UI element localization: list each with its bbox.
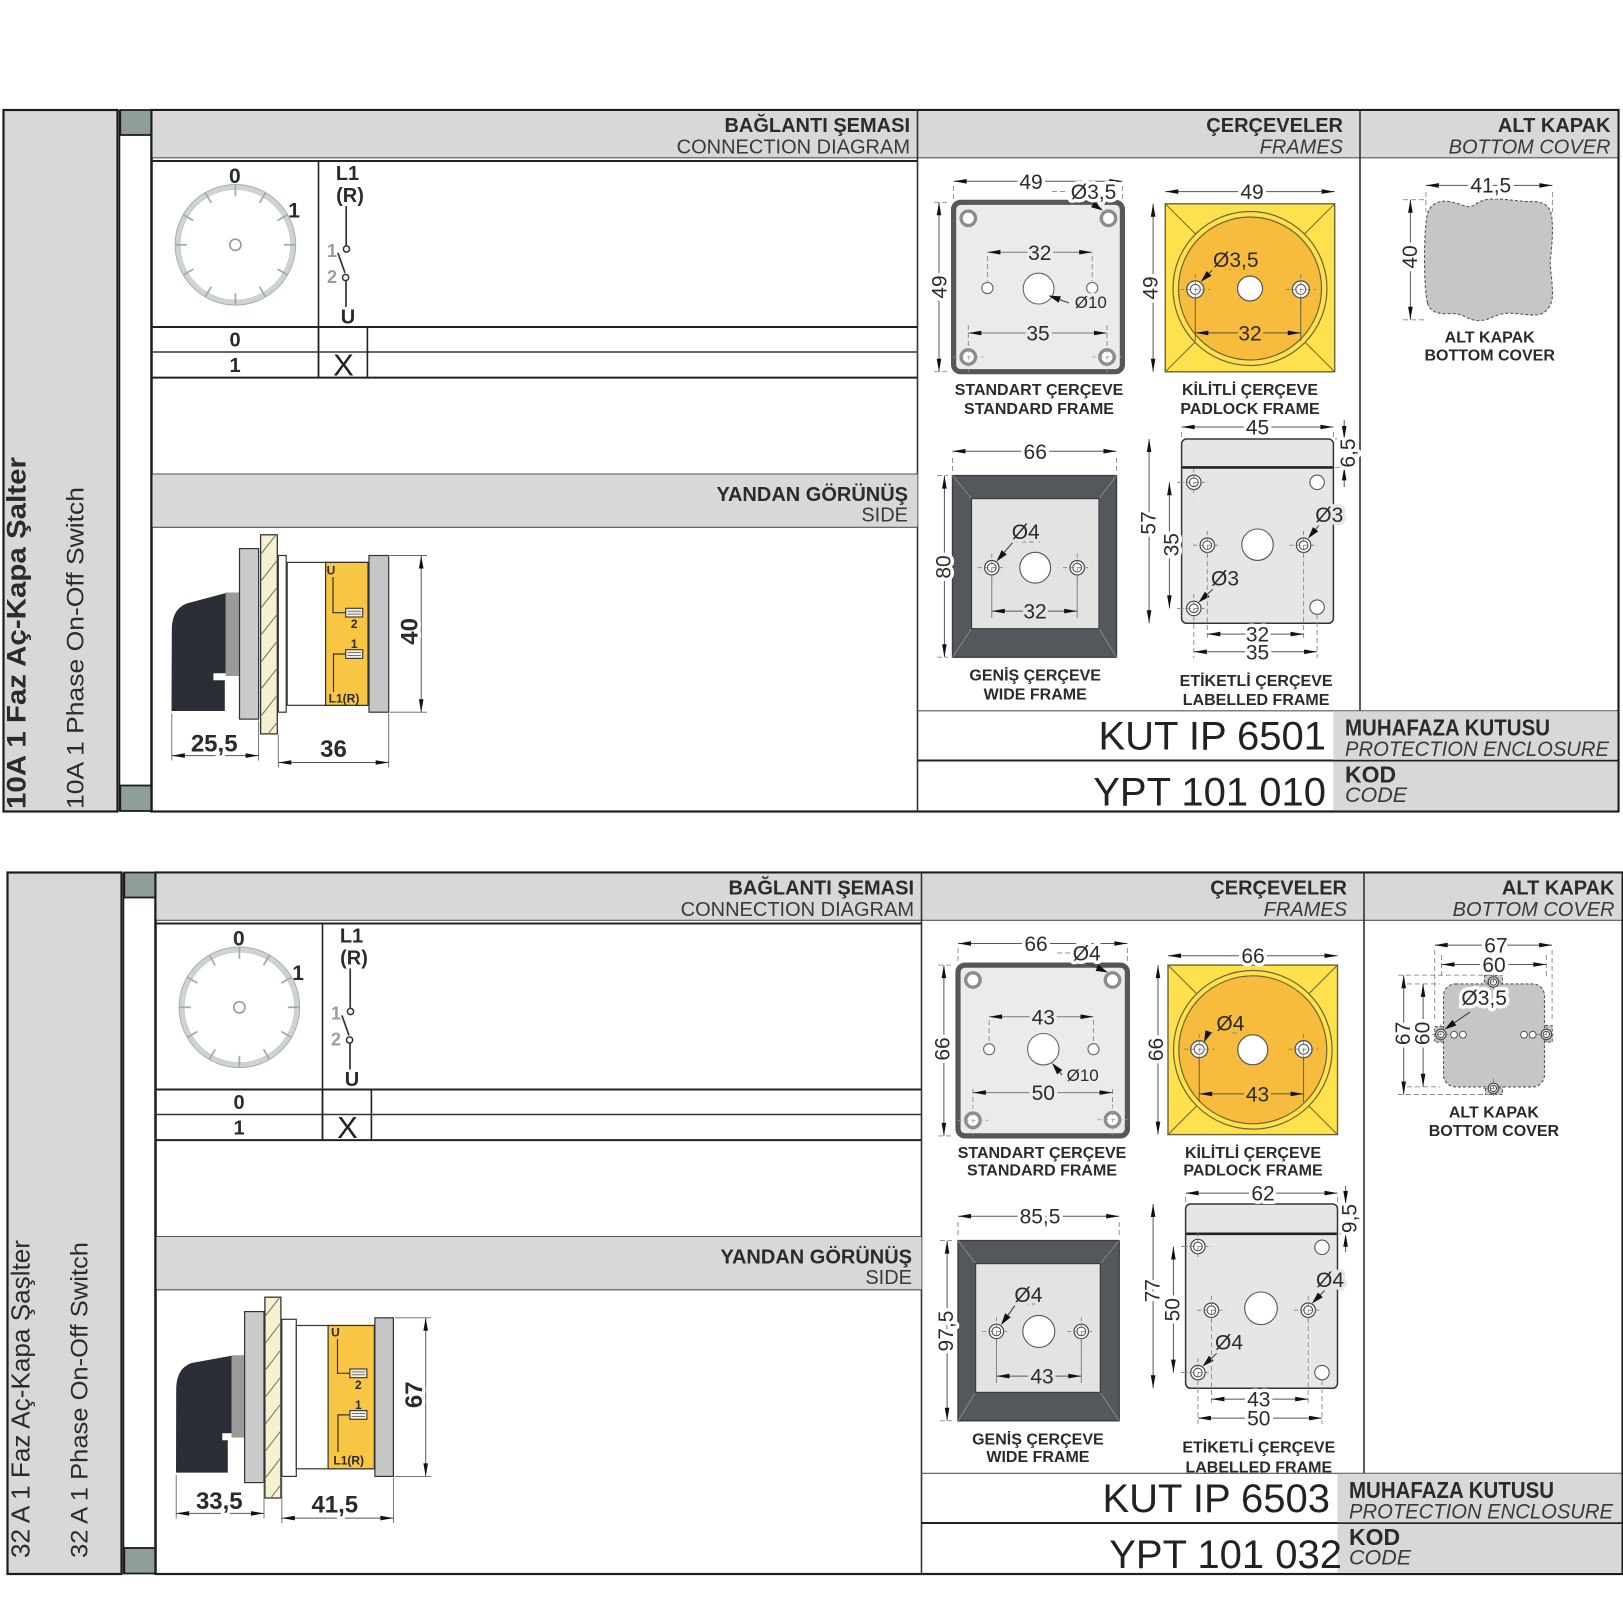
svg-text:66: 66 [1145,1038,1168,1061]
svg-text:67: 67 [401,1381,428,1408]
svg-text:KUT IP 6501: KUT IP 6501 [1098,714,1326,758]
svg-text:6,5: 6,5 [1337,438,1360,467]
svg-text:BAĞLANTI ŞEMASI: BAĞLANTI ŞEMASI [724,113,910,137]
svg-text:GENİŞ ÇERÇEVE: GENİŞ ÇERÇEVE [972,1430,1104,1448]
svg-text:PADLOCK FRAME: PADLOCK FRAME [1183,1163,1323,1180]
svg-text:WIDE FRAME: WIDE FRAME [986,1449,1089,1466]
svg-text:32: 32 [1028,242,1051,265]
svg-text:Ø4: Ø4 [1073,942,1101,965]
svg-text:0: 0 [233,927,245,950]
svg-text:BOTTOM COVER: BOTTOM COVER [1425,348,1556,365]
svg-text:45: 45 [1246,416,1269,439]
svg-text:BOTTOM COVER: BOTTOM COVER [1429,1123,1560,1140]
svg-text:32: 32 [1023,601,1046,624]
svg-text:Ø3,5: Ø3,5 [1461,987,1507,1010]
svg-text:SIDE: SIDE [861,505,908,527]
svg-text:BAĞLANTI ŞEMASI: BAĞLANTI ŞEMASI [728,876,914,900]
svg-text:ÇERÇEVELER: ÇERÇEVELER [1206,115,1343,137]
svg-text:U: U [327,563,336,577]
svg-text:50: 50 [1247,1408,1270,1431]
svg-text:62: 62 [1251,1182,1274,1205]
svg-text:50: 50 [1162,1298,1185,1321]
svg-text:Ø4: Ø4 [1215,1331,1243,1354]
svg-text:ALT KAPAK: ALT KAPAK [1502,878,1615,900]
svg-text:85,5: 85,5 [1020,1205,1061,1228]
svg-text:U: U [345,1069,359,1091]
svg-text:X: X [337,1110,358,1145]
svg-text:ALT KAPAK: ALT KAPAK [1449,1104,1540,1121]
svg-text:49: 49 [1240,181,1263,204]
svg-text:49: 49 [1019,171,1042,194]
svg-text:Ø4: Ø4 [1012,521,1040,544]
svg-text:1: 1 [327,241,337,261]
svg-text:STANDART ÇERÇEVE: STANDART ÇERÇEVE [955,382,1124,399]
svg-text:35: 35 [1246,641,1269,664]
svg-text:35: 35 [1160,533,1183,556]
svg-text:1: 1 [331,1003,341,1023]
svg-text:ALT KAPAK: ALT KAPAK [1445,330,1536,347]
svg-text:KİLİTLİ ÇERÇEVE: KİLİTLİ ÇERÇEVE [1182,381,1318,399]
svg-text:CONNECTION DIAGRAM: CONNECTION DIAGRAM [681,899,914,921]
svg-text:49: 49 [1140,276,1163,299]
svg-text:YANDAN GÖRÜNÜŞ: YANDAN GÖRÜNÜŞ [720,1246,912,1269]
svg-text:Ø10: Ø10 [1067,1066,1099,1085]
svg-text:PROTECTION ENCLOSURE: PROTECTION ENCLOSURE [1345,737,1610,761]
svg-text:WIDE FRAME: WIDE FRAME [984,687,1087,704]
svg-text:43: 43 [1030,1366,1053,1389]
svg-text:10A 1 Faz Aç-Kapa Şalter: 10A 1 Faz Aç-Kapa Şalter [2,456,32,809]
svg-text:L1(R): L1(R) [333,1454,364,1468]
svg-text:57: 57 [1137,511,1160,534]
svg-text:35: 35 [1026,323,1049,346]
svg-text:66: 66 [1024,933,1047,956]
svg-text:Ø10: Ø10 [1075,293,1107,312]
svg-text:66: 66 [1241,945,1264,968]
svg-text:LABELLED FRAME: LABELLED FRAME [1185,1460,1332,1477]
svg-text:FRAMES: FRAMES [1260,137,1344,159]
svg-text:ETİKETLİ ÇERÇEVE: ETİKETLİ ÇERÇEVE [1180,672,1333,690]
svg-text:KİLİTLİ ÇERÇEVE: KİLİTLİ ÇERÇEVE [1185,1144,1321,1162]
svg-text:33,5: 33,5 [196,1488,243,1515]
svg-text:1: 1 [233,1118,244,1140]
svg-text:9,5: 9,5 [1339,1204,1362,1233]
svg-text:41,5: 41,5 [1470,175,1511,198]
svg-text:0: 0 [229,165,241,188]
svg-text:PROTECTION ENCLOSURE: PROTECTION ENCLOSURE [1349,1500,1614,1524]
svg-text:CONNECTION DIAGRAM: CONNECTION DIAGRAM [677,137,910,159]
svg-text:Ø3,5: Ø3,5 [1071,181,1117,204]
svg-text:SIDE: SIDE [865,1267,912,1289]
svg-text:Ø3,5: Ø3,5 [1213,249,1259,272]
svg-text:2: 2 [351,617,358,631]
svg-text:32 A 1 Phase On-Off Switch: 32 A 1 Phase On-Off Switch [67,1242,94,1558]
svg-text:GENİŞ ÇERÇEVE: GENİŞ ÇERÇEVE [969,667,1101,685]
svg-text:25,5: 25,5 [191,731,238,758]
svg-text:L1: L1 [340,926,363,948]
svg-text:0: 0 [229,330,240,352]
svg-text:BOTTOM COVER: BOTTOM COVER [1453,899,1615,921]
svg-text:Ø3: Ø3 [1211,568,1239,591]
svg-text:BOTTOM COVER: BOTTOM COVER [1449,137,1611,159]
svg-text:STANDARD FRAME: STANDARD FRAME [964,401,1114,418]
svg-text:U: U [331,1325,340,1339]
svg-text:YPT 101 010: YPT 101 010 [1093,770,1326,814]
svg-text:LABELLED FRAME: LABELLED FRAME [1183,692,1330,709]
svg-text:32 A 1 Faz Aç-Kapa Şaşlter: 32 A 1 Faz Aç-Kapa Şaşlter [5,1240,35,1558]
svg-text:YANDAN GÖRÜNÜŞ: YANDAN GÖRÜNÜŞ [716,483,908,506]
svg-text:50: 50 [1032,1082,1055,1105]
svg-text:66: 66 [1024,441,1047,464]
svg-text:Ø4: Ø4 [1316,1269,1344,1292]
svg-text:ETİKETLİ ÇERÇEVE: ETİKETLİ ÇERÇEVE [1182,1438,1335,1456]
svg-text:ÇERÇEVELER: ÇERÇEVELER [1210,878,1347,900]
svg-text:40: 40 [396,618,423,645]
svg-text:41,5: 41,5 [311,1492,358,1519]
svg-text:1: 1 [229,355,240,377]
svg-text:43: 43 [1246,1083,1269,1106]
svg-text:KUT IP 6503: KUT IP 6503 [1102,1477,1330,1521]
svg-text:Ø4: Ø4 [1014,1284,1042,1307]
svg-text:1: 1 [288,199,300,222]
svg-text:66: 66 [932,1037,955,1060]
svg-text:2: 2 [331,1030,341,1050]
svg-text:43: 43 [1032,1006,1055,1029]
svg-text:2: 2 [355,1378,362,1392]
svg-text:2: 2 [327,267,337,287]
svg-text:L1(R): L1(R) [329,692,360,706]
svg-text:32: 32 [1238,322,1261,345]
svg-text:(R): (R) [336,185,364,207]
svg-text:X: X [333,348,354,383]
svg-text:1: 1 [351,637,358,651]
svg-text:ALT KAPAK: ALT KAPAK [1498,115,1611,137]
svg-text:CODE: CODE [1345,783,1408,807]
svg-text:1: 1 [355,1398,362,1412]
svg-text:80: 80 [933,555,956,578]
svg-text:STANDART ÇERÇEVE: STANDART ÇERÇEVE [958,1145,1127,1162]
svg-text:1: 1 [292,962,304,985]
svg-text:STANDARD FRAME: STANDARD FRAME [967,1163,1117,1180]
svg-text:36: 36 [320,736,347,763]
svg-text:49: 49 [929,275,952,298]
svg-text:0: 0 [233,1092,244,1114]
svg-text:CODE: CODE [1349,1546,1412,1570]
svg-text:U: U [341,307,355,329]
svg-text:60: 60 [1482,954,1505,977]
svg-text:YPT 101 032: YPT 101 032 [1109,1533,1342,1577]
svg-text:10A 1 Phase On-Off Switch: 10A 1 Phase On-Off Switch [63,487,90,809]
svg-text:97,5: 97,5 [935,1311,958,1352]
svg-text:FRAMES: FRAMES [1264,899,1348,921]
svg-text:Ø3: Ø3 [1315,504,1343,527]
svg-text:Ø4: Ø4 [1216,1012,1244,1035]
svg-text:L1: L1 [336,163,359,185]
svg-text:60: 60 [1411,1022,1434,1045]
svg-text:40: 40 [1399,245,1422,268]
svg-text:(R): (R) [340,948,368,970]
